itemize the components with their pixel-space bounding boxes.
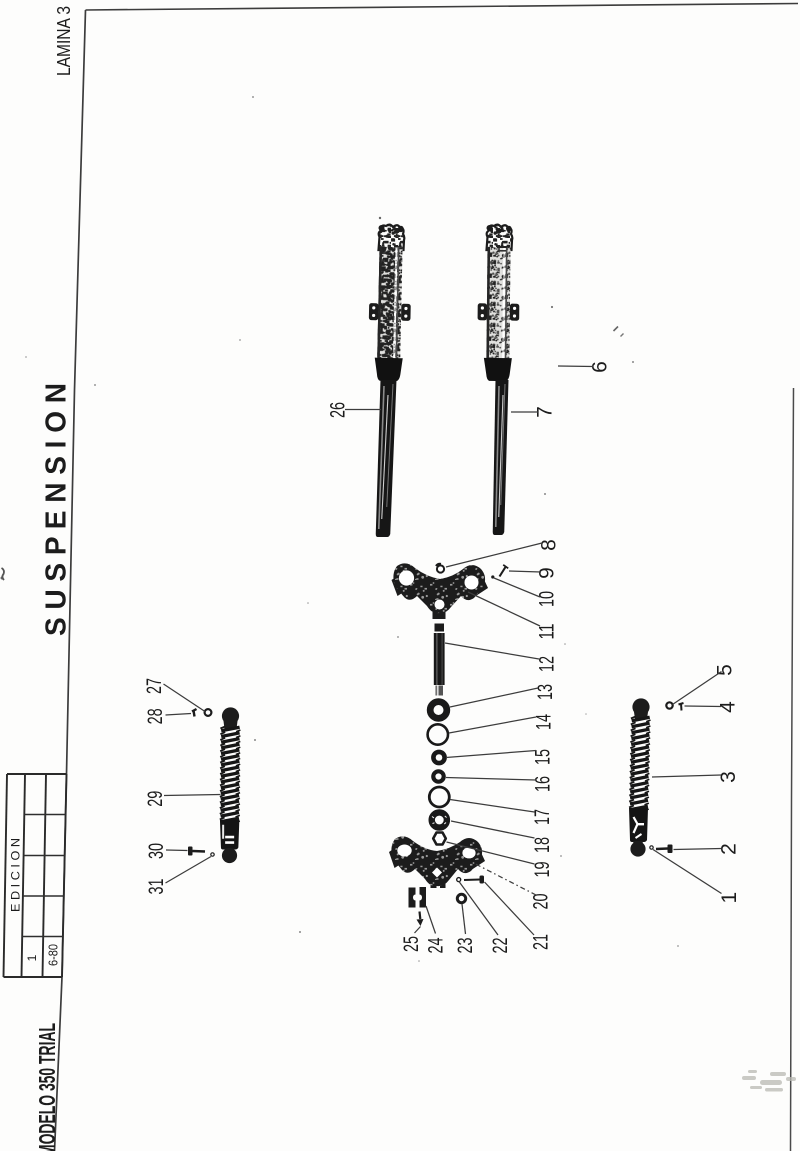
- svg-text:13: 13: [534, 684, 557, 700]
- svg-text:S U S P E N S I O N: S U S P E N S I O N: [41, 383, 73, 636]
- svg-text:29: 29: [144, 791, 167, 807]
- svg-text:31: 31: [145, 879, 168, 895]
- svg-text:21: 21: [530, 934, 553, 950]
- svg-text:22: 22: [489, 938, 512, 954]
- svg-text:14: 14: [533, 714, 556, 730]
- svg-text:8: 8: [538, 539, 561, 551]
- svg-text:10: 10: [536, 591, 559, 607]
- svg-text:LAMINA 3: LAMINA 3: [54, 6, 74, 76]
- svg-text:3: 3: [717, 771, 740, 783]
- svg-text:E D I C I O N: E D I C I O N: [9, 838, 23, 912]
- svg-text:28: 28: [144, 708, 167, 724]
- svg-text:27: 27: [143, 678, 166, 694]
- svg-text:18: 18: [531, 837, 554, 853]
- svg-text:6-80: 6-80: [46, 944, 61, 966]
- svg-text:15: 15: [532, 749, 555, 765]
- svg-text:1: 1: [718, 892, 741, 904]
- svg-text:23: 23: [454, 938, 477, 954]
- svg-text:25: 25: [400, 936, 423, 952]
- svg-text:1: 1: [25, 954, 39, 961]
- svg-text:16: 16: [532, 776, 555, 792]
- svg-text:24: 24: [425, 937, 448, 953]
- svg-text:MODELO 350 TRIAL: MODELO 350 TRIAL: [34, 1023, 60, 1151]
- svg-text:30: 30: [145, 843, 168, 859]
- svg-text:20: 20: [530, 894, 553, 910]
- svg-text:9: 9: [536, 567, 559, 579]
